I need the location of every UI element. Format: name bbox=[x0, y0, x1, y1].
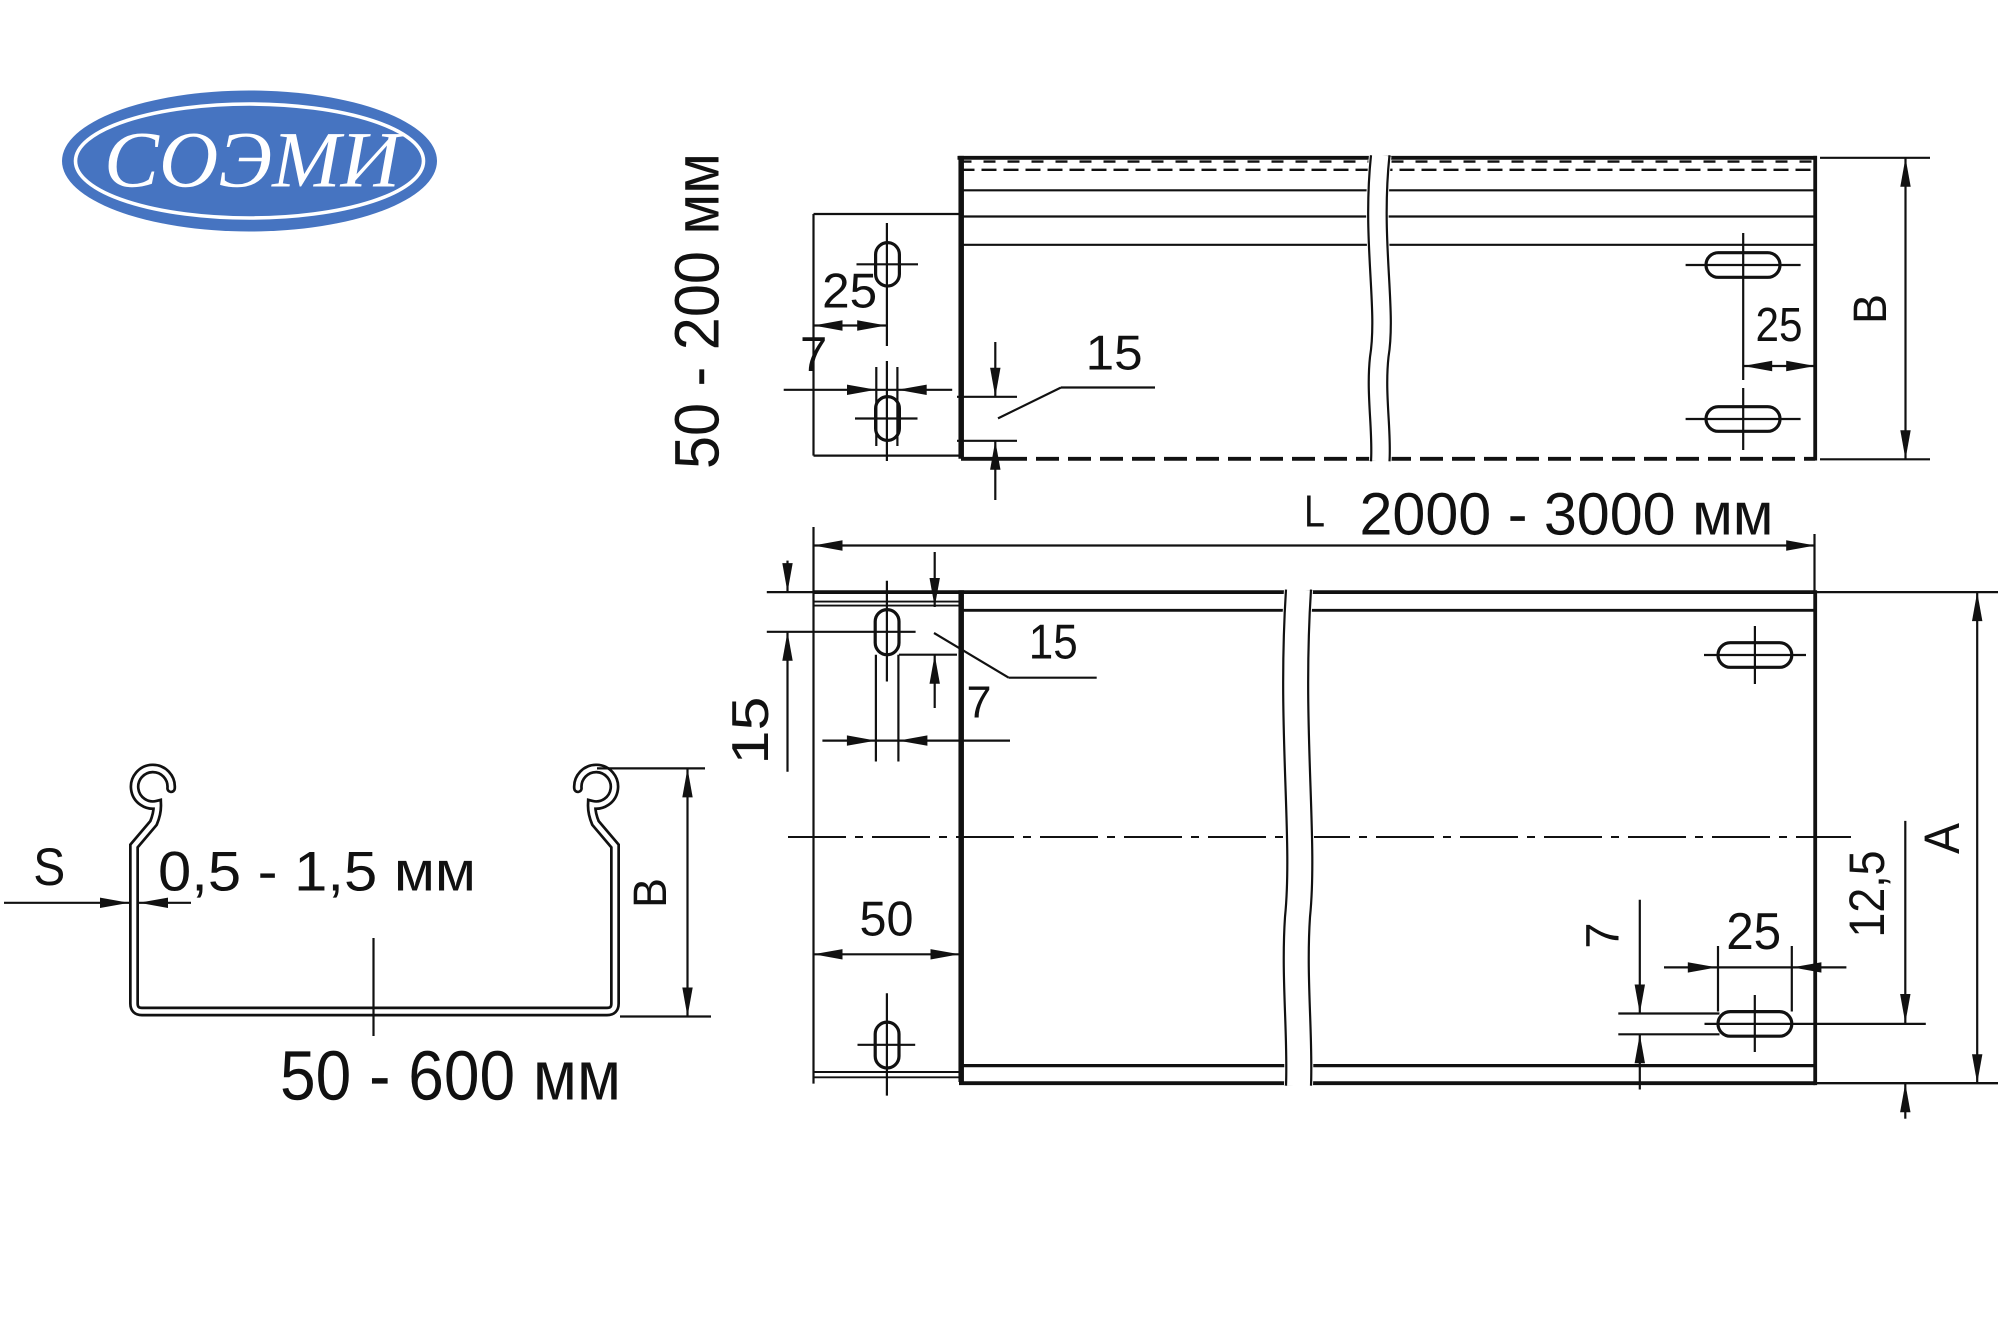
svg-text:7: 7 bbox=[966, 677, 991, 728]
svg-text:СОЭМИ: СОЭМИ bbox=[104, 117, 404, 205]
svg-text:50 - 200 мм: 50 - 200 мм bbox=[662, 153, 732, 469]
svg-text:7: 7 bbox=[1575, 923, 1628, 949]
svg-text:A: A bbox=[1914, 822, 1970, 854]
svg-text:0,5 - 1,5 мм: 0,5 - 1,5 мм bbox=[158, 840, 476, 903]
svg-text:B: B bbox=[1843, 294, 1896, 324]
svg-text:50 - 600 мм: 50 - 600 мм bbox=[280, 1037, 621, 1115]
svg-text:25: 25 bbox=[1726, 903, 1781, 961]
svg-text:15: 15 bbox=[1086, 327, 1143, 381]
svg-text:L: L bbox=[1304, 486, 1325, 537]
svg-text:S: S bbox=[33, 838, 65, 897]
svg-text:50: 50 bbox=[860, 893, 914, 947]
svg-text:7: 7 bbox=[800, 328, 827, 382]
svg-text:15: 15 bbox=[722, 697, 780, 765]
svg-text:25: 25 bbox=[822, 264, 877, 318]
svg-text:12,5: 12,5 bbox=[1839, 851, 1895, 938]
svg-text:25: 25 bbox=[1756, 299, 1803, 352]
svg-text:2000 - 3000 мм: 2000 - 3000 мм bbox=[1360, 481, 1774, 548]
svg-text:B: B bbox=[623, 878, 676, 908]
svg-text:15: 15 bbox=[1029, 616, 1078, 670]
